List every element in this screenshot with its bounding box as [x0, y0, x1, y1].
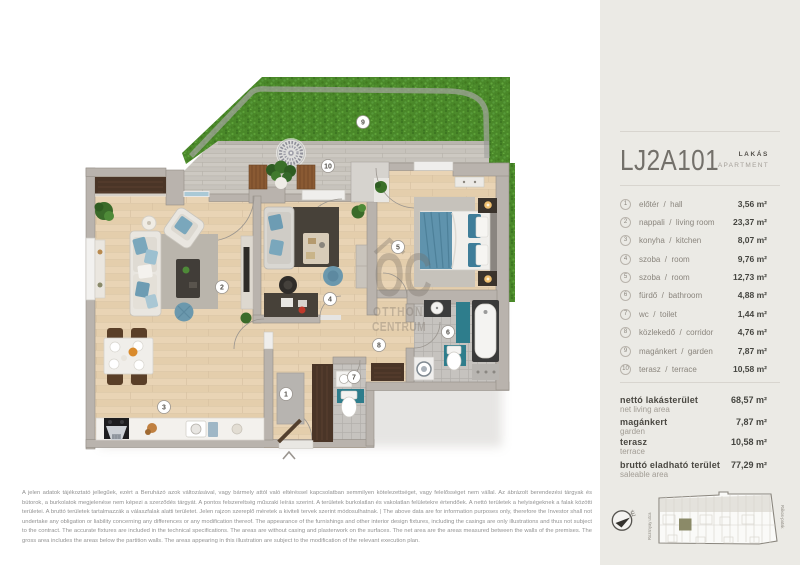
svg-text:Rákos-patak: Rákos-patak [780, 505, 785, 529]
svg-text:Rozsnyay utca: Rozsnyay utca [647, 512, 652, 540]
svg-text:7: 7 [352, 375, 356, 382]
svg-text:4: 4 [328, 297, 332, 304]
svg-text:2: 2 [220, 285, 224, 292]
svg-text:OTTHON: OTTHON [373, 306, 424, 319]
svg-text:5: 5 [396, 245, 400, 252]
svg-text:6: 6 [446, 330, 450, 337]
svg-text:CENTRUM: CENTRUM [372, 321, 426, 334]
svg-text:1: 1 [284, 392, 288, 399]
svg-text:3: 3 [162, 405, 166, 412]
svg-text:10: 10 [324, 164, 332, 171]
svg-text:9: 9 [361, 120, 365, 127]
svg-text:8: 8 [377, 343, 381, 350]
